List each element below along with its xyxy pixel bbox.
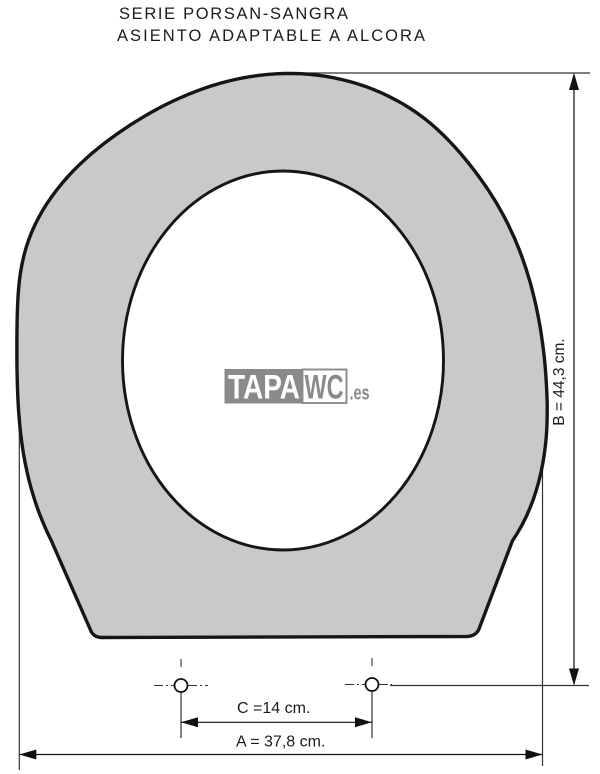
svg-text:ASIENTO ADAPTABLE A ALCORA: ASIENTO ADAPTABLE A ALCORA (117, 27, 425, 45)
svg-text:TAPA: TAPA (228, 369, 300, 407)
svg-text:A = 37,8 cm.: A = 37,8 cm. (236, 734, 325, 751)
svg-text:C =14 cm.: C =14 cm. (237, 700, 310, 717)
svg-text:.es: .es (350, 382, 370, 405)
svg-text:WC: WC (305, 369, 344, 407)
svg-text:B = 44,3 cm.: B = 44,3 cm. (551, 338, 568, 425)
svg-text:SERIE PORSAN-SANGRA: SERIE PORSAN-SANGRA (119, 5, 348, 23)
